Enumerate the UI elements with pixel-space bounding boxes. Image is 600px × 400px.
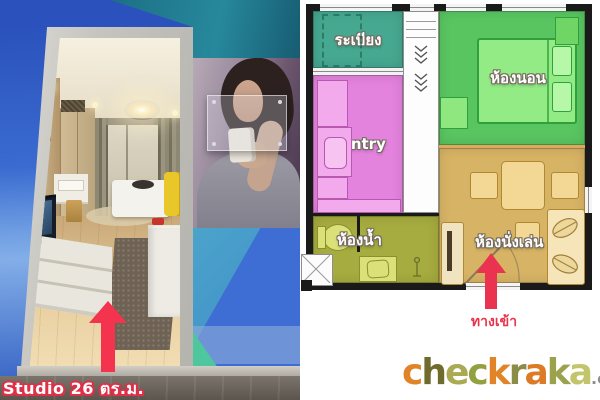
logo-letter: h <box>421 352 445 393</box>
sofa-daybed <box>547 209 585 285</box>
stool <box>66 200 82 222</box>
pantry-sink-counter <box>317 127 352 177</box>
floor-cushion <box>551 172 579 199</box>
tv-cabinet <box>441 222 464 285</box>
acrylic-frame <box>207 95 287 151</box>
kitchen-sink <box>324 137 347 169</box>
logo-letter: a <box>569 352 591 393</box>
hanger-rack-icon <box>413 44 429 68</box>
window-marking <box>320 4 392 11</box>
shower-icon <box>409 256 425 280</box>
pillow <box>552 82 572 112</box>
ceiling-lamp <box>124 100 160 120</box>
frame-screws <box>212 100 216 104</box>
washer-space-dashed <box>322 14 362 67</box>
entrance-label: ทางเข้า <box>460 311 528 333</box>
logo-tld: .com <box>591 369 600 388</box>
logo-letter: r <box>509 352 525 393</box>
white-cabinet <box>148 225 180 317</box>
sink-basin <box>366 259 389 278</box>
dining-table <box>501 161 545 210</box>
wall-stub <box>301 280 312 291</box>
pantry-counter <box>317 80 348 127</box>
hanger-rack-icon <box>413 72 429 96</box>
bathroom-sink <box>359 256 397 282</box>
living-label: ห้องนั่งเล่น <box>475 230 543 254</box>
toilet-tank <box>317 226 326 249</box>
bedroom-label: ห้องนอน <box>490 66 546 90</box>
bedroom-table <box>440 97 468 129</box>
balcony-sliding-window <box>313 68 403 75</box>
bed-tray <box>132 180 154 189</box>
spotlight <box>92 102 98 108</box>
studio-size-caption: Studio 26 ตร.ม. <box>3 377 144 400</box>
up-arrow-icon <box>101 322 115 372</box>
room-living: ห้องนั่งเล่น <box>439 145 585 283</box>
bathroom-label: ห้องน้ำ <box>337 228 382 252</box>
pillow <box>552 46 572 76</box>
checkraka-logo: checkraka.com <box>402 352 598 393</box>
window-marking <box>446 4 486 11</box>
logo-letter: k <box>487 352 509 393</box>
room-pantry: Pantry <box>313 75 403 213</box>
floor-cushion <box>470 172 498 199</box>
room-bedroom: ห้องนอน <box>439 11 585 145</box>
logo-letter: c <box>402 352 421 393</box>
nightstand <box>555 17 579 45</box>
pantry-counter <box>317 177 348 199</box>
window-marking <box>410 4 434 11</box>
floor-plan-panel: ระเบียง Pantry <box>300 0 600 400</box>
closet-shelves <box>406 14 436 40</box>
logo-letter: c <box>467 352 486 393</box>
ledge-cross-icon <box>302 255 330 283</box>
pantry-counter <box>317 199 401 213</box>
wall-art-photo <box>193 58 300 228</box>
entrance-arrow-icon <box>485 272 497 309</box>
storage-basket <box>61 100 85 112</box>
toy-car <box>152 218 164 225</box>
tv-icon <box>447 231 452 271</box>
logo-wordmark: checkraka <box>402 352 591 393</box>
room-balcony: ระเบียง <box>313 11 403 68</box>
spotlight <box>172 110 178 116</box>
logo-letter: e <box>445 352 467 393</box>
apartment-photo: Studio 26 ตร.ม. <box>0 0 300 400</box>
built-in-closet <box>403 11 439 213</box>
floor-plan: ระเบียง Pantry <box>306 4 592 290</box>
logo-letter: a <box>524 352 546 393</box>
geometric-wall-graphic <box>193 228 300 372</box>
yellow-chair <box>164 172 180 216</box>
window-marking <box>502 4 566 11</box>
window-marking <box>585 187 592 213</box>
logo-letter: k <box>547 352 569 393</box>
cushion-leaf-icon <box>548 210 582 282</box>
